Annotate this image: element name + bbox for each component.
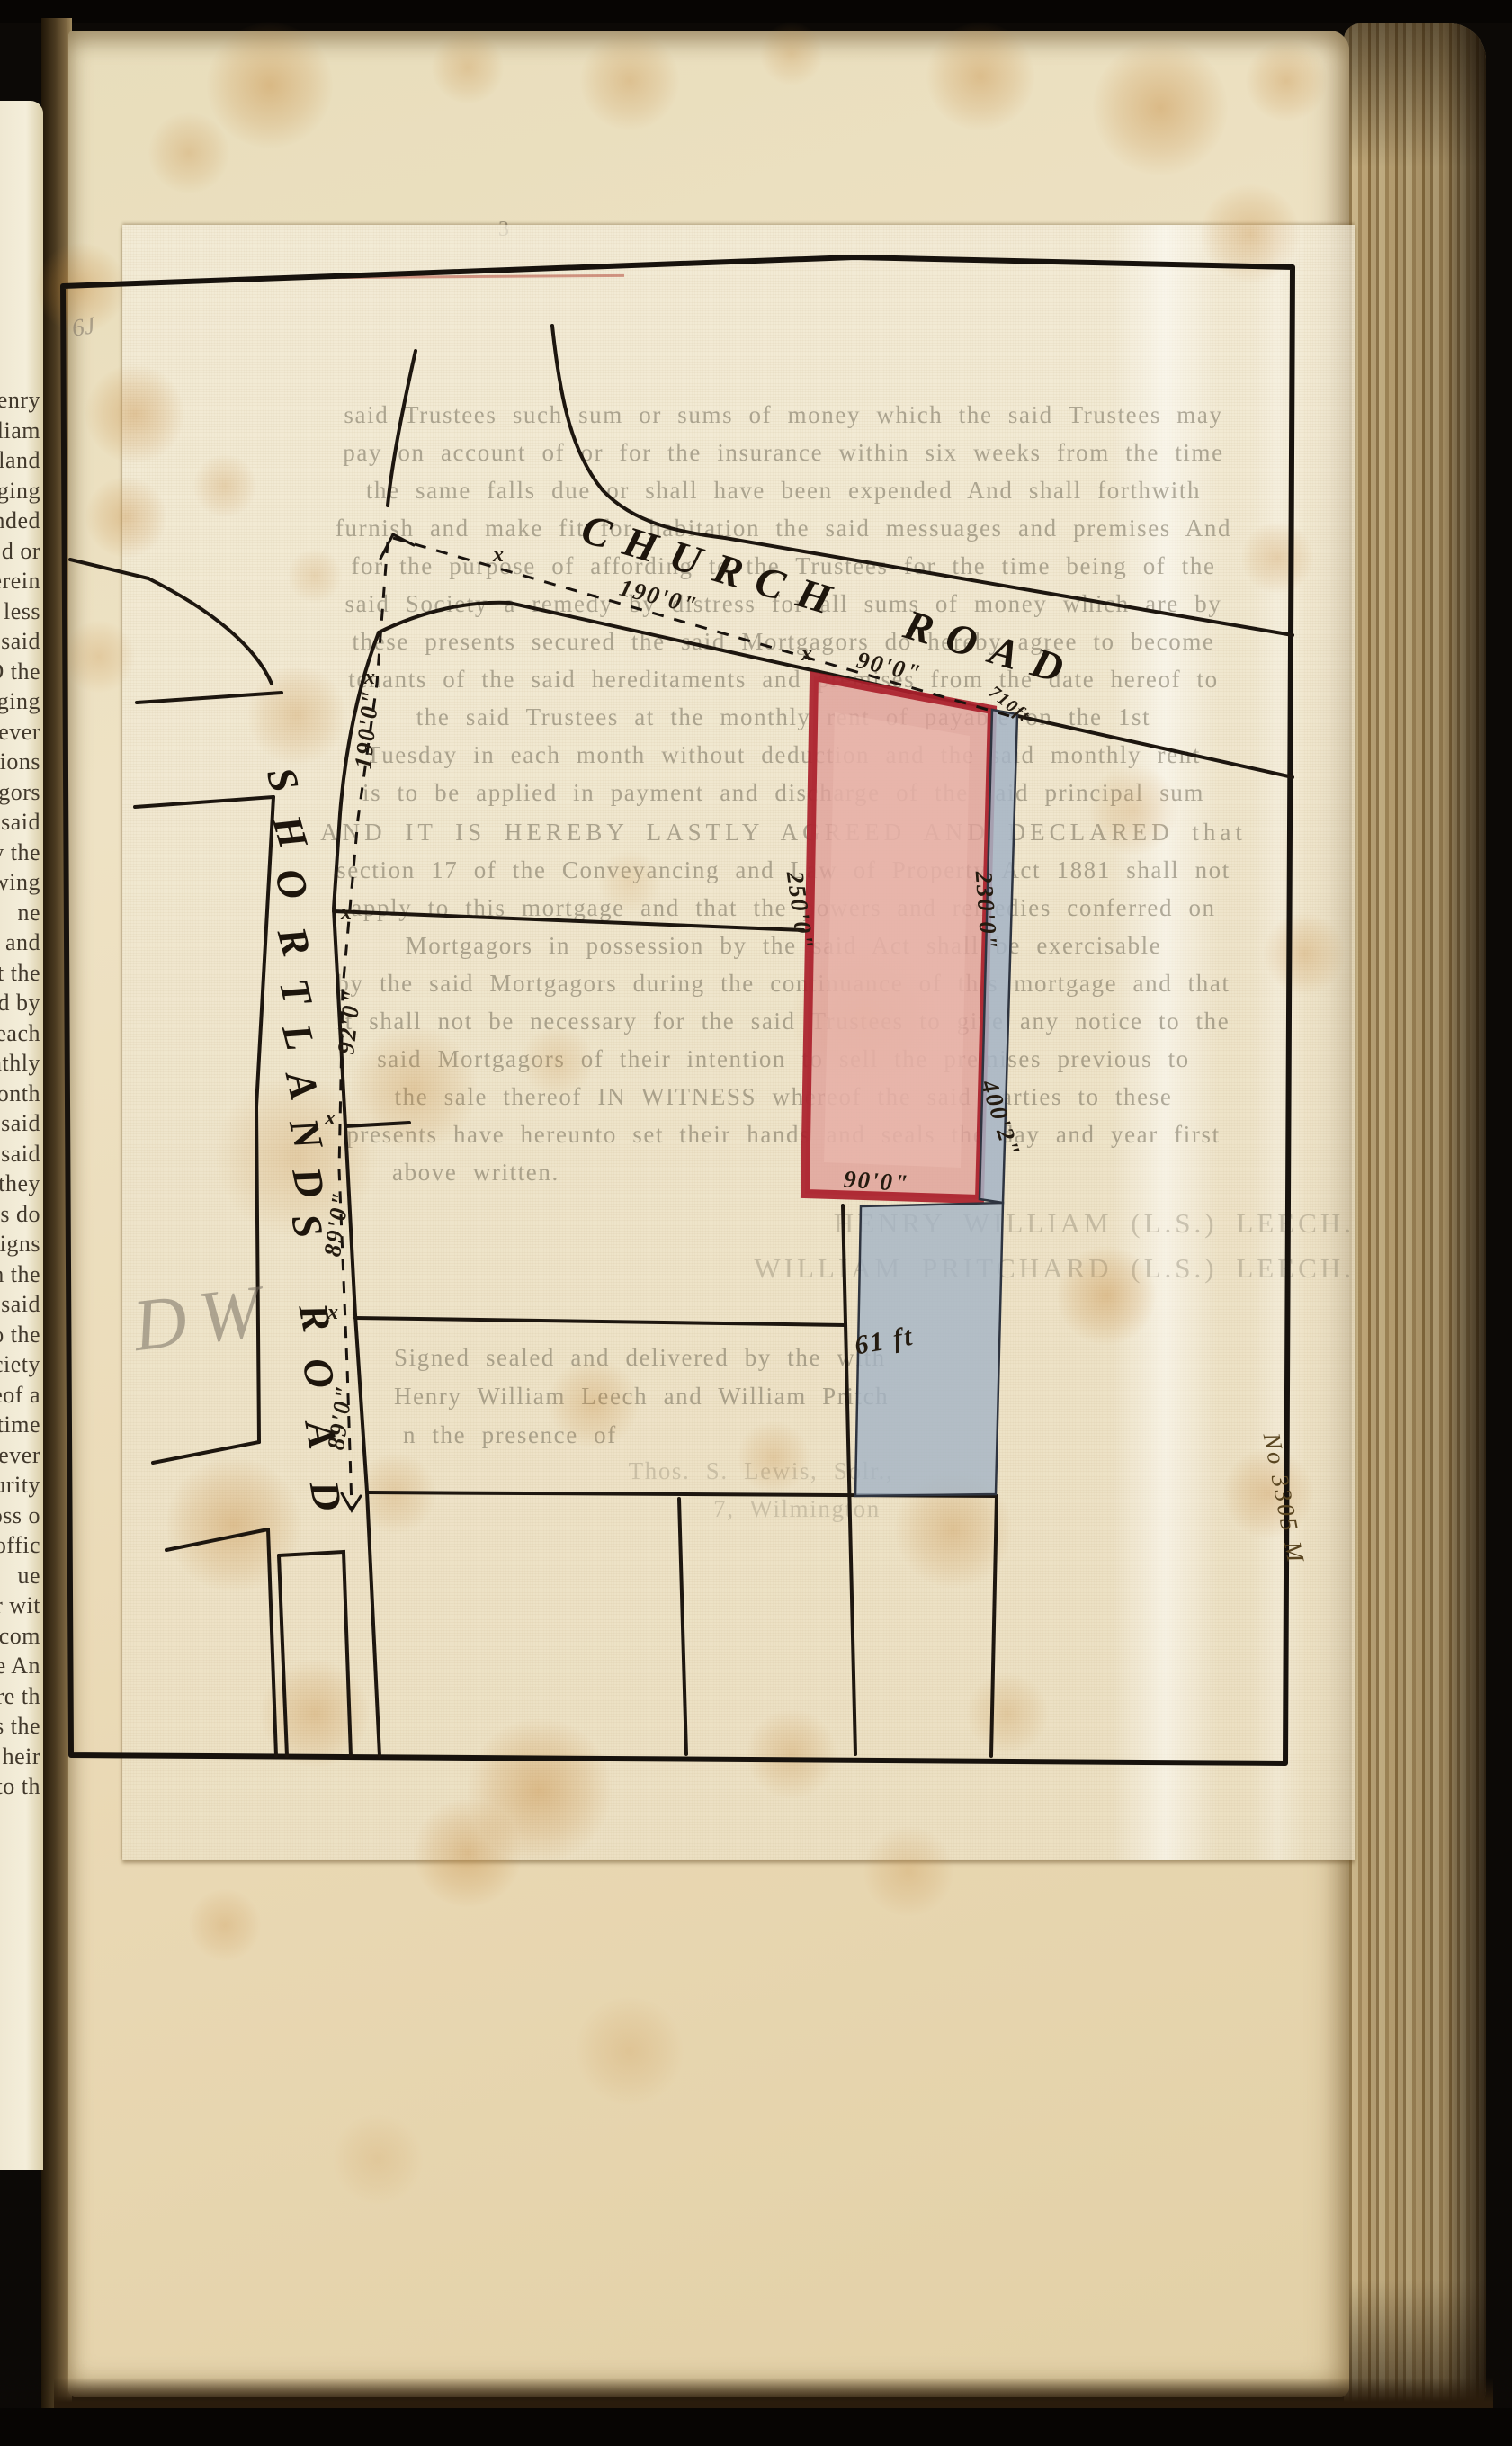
photo-top-edge bbox=[0, 0, 1512, 23]
printed-line: Mortgagors in possession by the said Act… bbox=[293, 932, 1274, 960]
pencil-signature: DW bbox=[129, 1268, 278, 1368]
text-fragment: ue bbox=[17, 1563, 40, 1590]
measurement-label: x bbox=[327, 1301, 340, 1325]
text-fragment: as the bbox=[0, 1713, 40, 1740]
text-fragment: ne bbox=[17, 900, 40, 927]
book-photo: enryliamlandgingndedd orereinlesssaidD t… bbox=[0, 0, 1512, 2446]
photo-bottom-edge bbox=[0, 2408, 1512, 2446]
printed-line: AND IT IS HEREBY LASTLY AGREED AND DECLA… bbox=[293, 819, 1274, 847]
printed-line: Thos. S. Lewis, Solr., bbox=[572, 1457, 950, 1485]
text-fragment: liam bbox=[0, 417, 40, 444]
printed-line: HENRY WILLIAM (L.S.) LEECH. bbox=[662, 1207, 1355, 1240]
text-fragment: land bbox=[0, 447, 40, 474]
text-fragment: r ever bbox=[0, 719, 40, 746]
stain bbox=[432, 31, 504, 103]
measurement-label: 230'0" bbox=[970, 870, 1003, 951]
text-fragment: owing bbox=[0, 869, 40, 896]
measurement-label: x bbox=[364, 666, 377, 690]
printed-line: furnish and make fit for habitation the … bbox=[293, 515, 1274, 542]
text-fragment: erein bbox=[0, 568, 40, 595]
text-fragment: y to th bbox=[0, 1773, 40, 1800]
text-fragment: reof a bbox=[0, 1382, 40, 1409]
text-fragment: nded bbox=[0, 507, 40, 534]
text-fragment: to the bbox=[0, 1322, 40, 1348]
stain bbox=[576, 1997, 684, 2105]
text-fragment: her wit bbox=[0, 1592, 40, 1619]
printed-line: it shall not be necessary for the said T… bbox=[293, 1008, 1274, 1035]
printed-line: Henry William Leech and William Pritch bbox=[394, 1383, 1347, 1411]
book-page: 3 said Trustees such sum or sums of mone… bbox=[68, 31, 1349, 2397]
printed-line: tenants of the said hereditaments and pr… bbox=[293, 666, 1274, 694]
printed-line: presents have hereunto set their hands a… bbox=[293, 1121, 1274, 1149]
stain bbox=[189, 1889, 261, 1961]
measurement-label: x bbox=[493, 543, 505, 568]
printed-line: WILLIAM PRITCHARD (L.S.) LEECH. bbox=[644, 1252, 1355, 1285]
printed-line: said Trustees such sum or sums of money … bbox=[293, 401, 1274, 429]
printed-line: pay on account of or for the insurance w… bbox=[293, 439, 1274, 467]
stain bbox=[760, 22, 823, 85]
stain bbox=[1093, 40, 1228, 175]
measurement-label: x bbox=[341, 901, 353, 926]
printed-line: above written. bbox=[392, 1159, 752, 1187]
printed-line: the sale thereof IN WITNESS whereof the … bbox=[293, 1083, 1274, 1111]
printed-line: by the said Mortgagors during the contin… bbox=[293, 970, 1274, 998]
text-fragment: gagors bbox=[0, 779, 40, 806]
measurement-label: x bbox=[325, 1107, 337, 1131]
stain bbox=[580, 31, 679, 130]
text-fragment: said bbox=[1, 628, 40, 655]
text-fragment: e said bbox=[0, 1141, 40, 1168]
text-fragment: ecurity bbox=[0, 1472, 40, 1499]
text-fragment: eir heir bbox=[0, 1743, 40, 1770]
text-fragment: he said bbox=[0, 1291, 40, 1318]
text-fragment: ations bbox=[0, 748, 40, 775]
stain bbox=[207, 22, 333, 148]
text-fragment: enry bbox=[0, 387, 40, 414]
stain bbox=[333, 2114, 423, 2204]
previous-page-sliver: enryliamlandgingndedd orereinlesssaidD t… bbox=[0, 101, 43, 2170]
text-fragment: t the bbox=[0, 960, 40, 987]
printed-line: is to be applied in payment and discharg… bbox=[293, 779, 1274, 807]
printed-line: 7, Wilmington bbox=[608, 1495, 986, 1523]
stain bbox=[148, 112, 229, 193]
stain bbox=[926, 22, 1034, 130]
printed-line: said Mortgagors of their intention to se… bbox=[293, 1045, 1274, 1073]
text-fragment: e and bbox=[0, 929, 40, 956]
text-fragment: onthly bbox=[0, 1050, 40, 1077]
sheet-fold-sheen bbox=[1112, 225, 1220, 1860]
book-page-edges bbox=[1344, 23, 1486, 2424]
printed-line: n the presence of bbox=[403, 1421, 943, 1449]
measurement-label: 90'0" bbox=[843, 1165, 910, 1197]
text-fragment: D the bbox=[0, 659, 40, 685]
measurement-label: x bbox=[801, 642, 814, 667]
book-gutter bbox=[41, 18, 72, 2429]
text-fragment: loss o bbox=[0, 1502, 40, 1529]
text-fragment: y the bbox=[0, 839, 40, 866]
text-fragment: less bbox=[4, 598, 40, 625]
text-fragment: Society bbox=[0, 1351, 40, 1378]
text-fragment: assigns bbox=[0, 1231, 40, 1258]
printed-line: the said Trustees at the monthly rent of… bbox=[293, 703, 1274, 731]
printed-line: the same falls due or shall have been ex… bbox=[293, 477, 1274, 505]
text-fragment: ce offic bbox=[0, 1532, 40, 1559]
text-fragment: ure th bbox=[0, 1683, 40, 1710]
text-fragment: he said bbox=[0, 1110, 40, 1137]
text-fragment: tors do bbox=[0, 1201, 40, 1228]
text-fragment: month bbox=[0, 1080, 40, 1107]
text-fragment: as they bbox=[0, 1170, 40, 1197]
pencil-mark-top-left: 6J bbox=[70, 311, 97, 343]
text-fragment: e An bbox=[0, 1653, 40, 1680]
text-fragment: nging bbox=[0, 688, 40, 715]
stain bbox=[1246, 40, 1327, 121]
printed-line: these presents secured the said Mortgago… bbox=[293, 628, 1274, 656]
text-fragment: n each bbox=[0, 1020, 40, 1047]
text-fragment: e said bbox=[0, 809, 40, 836]
text-fragment: becom bbox=[0, 1623, 40, 1650]
sheet-crease bbox=[1251, 225, 1305, 1860]
text-fragment: d or bbox=[2, 538, 40, 565]
page-bottom-shadow bbox=[54, 2378, 1493, 2408]
text-fragment: ging bbox=[0, 478, 40, 505]
text-fragment: he time bbox=[0, 1411, 40, 1438]
text-fragment: tsoever bbox=[0, 1442, 40, 1469]
printed-line: Tuesday in each month without deduction … bbox=[293, 741, 1274, 769]
text-fragment: id by bbox=[0, 990, 40, 1017]
text-fragment: th the bbox=[0, 1261, 40, 1288]
